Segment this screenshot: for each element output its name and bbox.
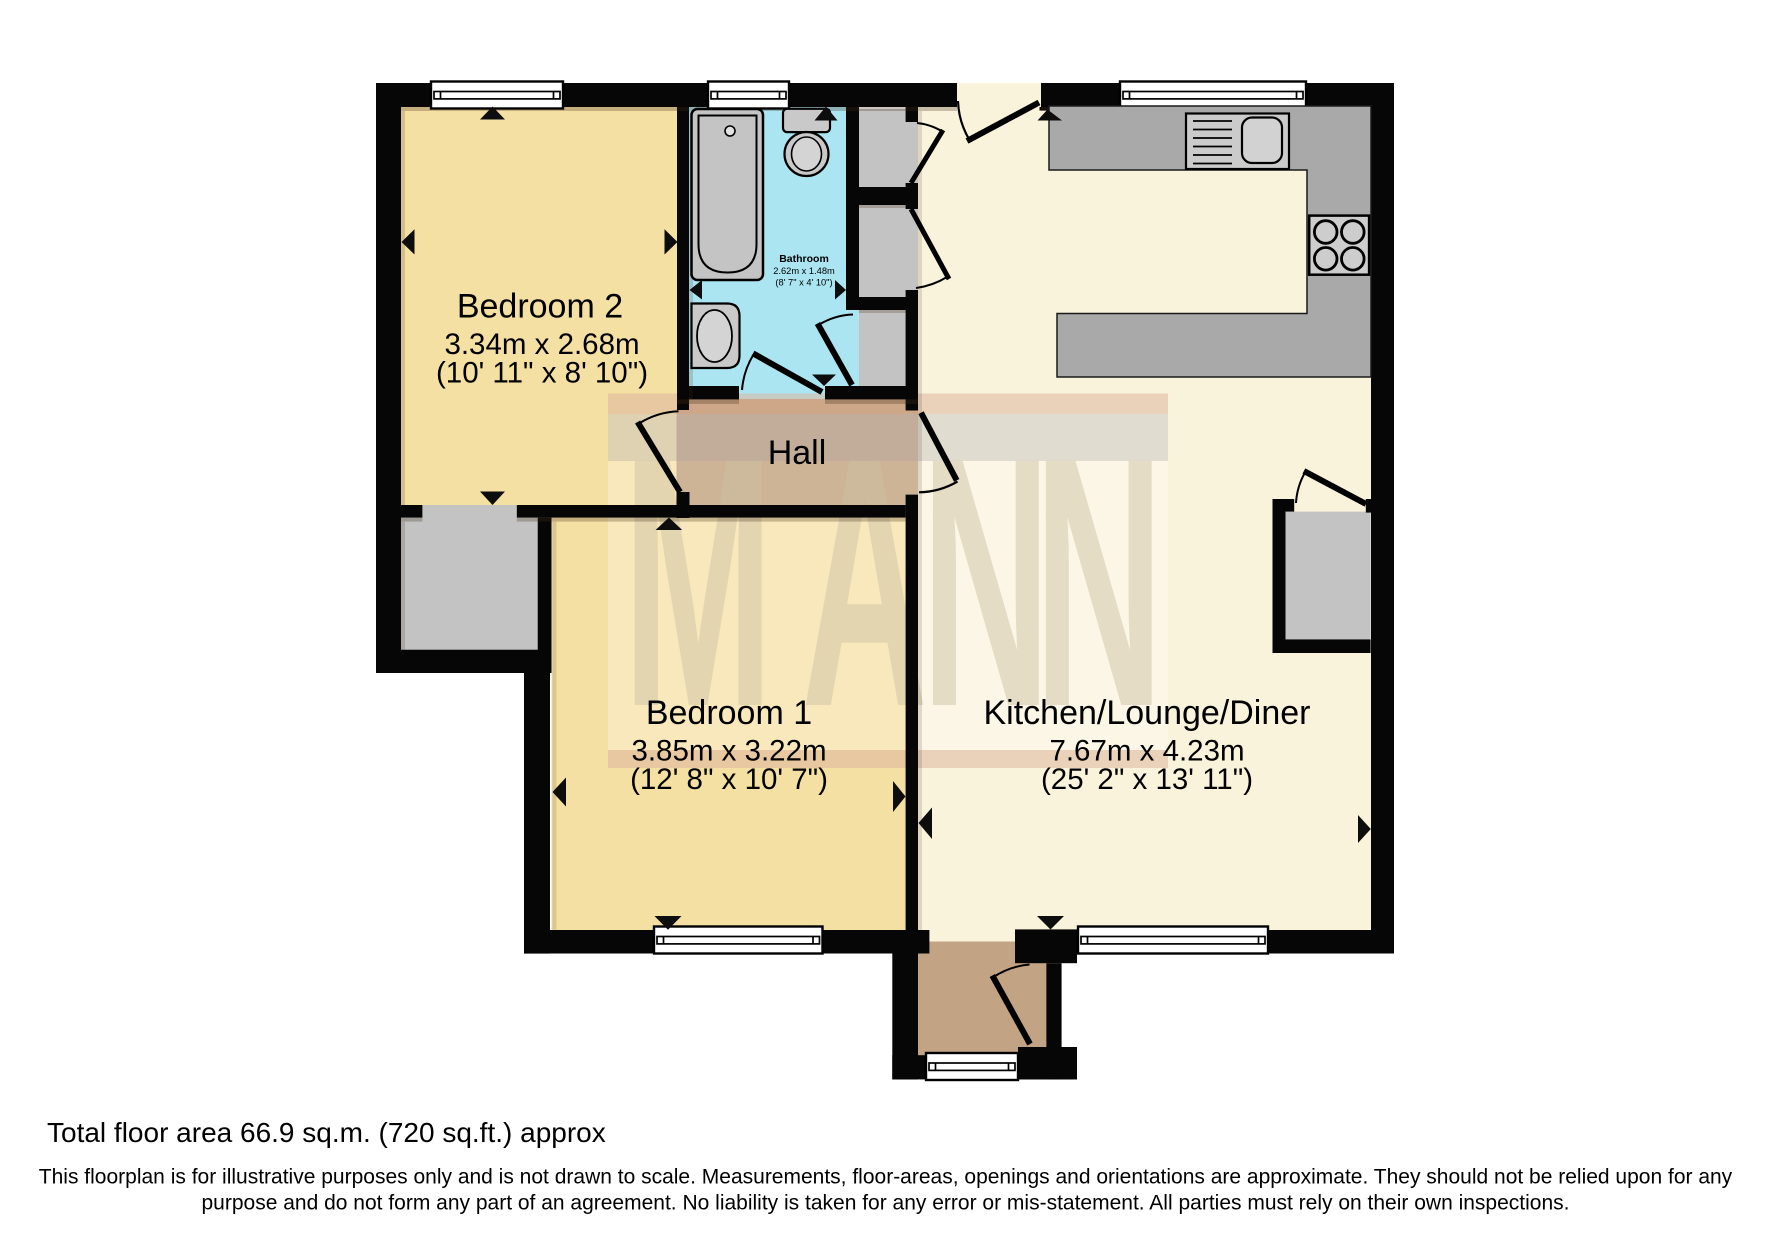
svg-text:Kitchen/Lounge/Diner: Kitchen/Lounge/Diner [983, 694, 1310, 732]
svg-text:This floorplan is for illustra: This floorplan is for illustrative purpo… [39, 1166, 1733, 1189]
svg-text:Total floor area 66.9 sq.m. (7: Total floor area 66.9 sq.m. (720 sq.ft.)… [47, 1117, 606, 1148]
svg-text:(25' 2" x 13' 11"): (25' 2" x 13' 11") [1041, 763, 1253, 796]
svg-text:Bathroom: Bathroom [779, 253, 829, 265]
svg-text:2.62m x 1.48m: 2.62m x 1.48m [773, 266, 835, 276]
svg-text:Bedroom 1: Bedroom 1 [646, 694, 812, 732]
svg-text:(12' 8" x 10' 7"): (12' 8" x 10' 7") [630, 763, 828, 796]
svg-text:(8' 7" x 4' 10"): (8' 7" x 4' 10") [775, 278, 832, 288]
svg-text:Hall: Hall [768, 434, 827, 472]
svg-text:Bedroom 2: Bedroom 2 [457, 288, 623, 326]
svg-text:purpose and do not form any pa: purpose and do not form any part of an a… [202, 1192, 1570, 1215]
svg-text:(10' 11" x 8' 10"): (10' 11" x 8' 10") [436, 357, 648, 390]
